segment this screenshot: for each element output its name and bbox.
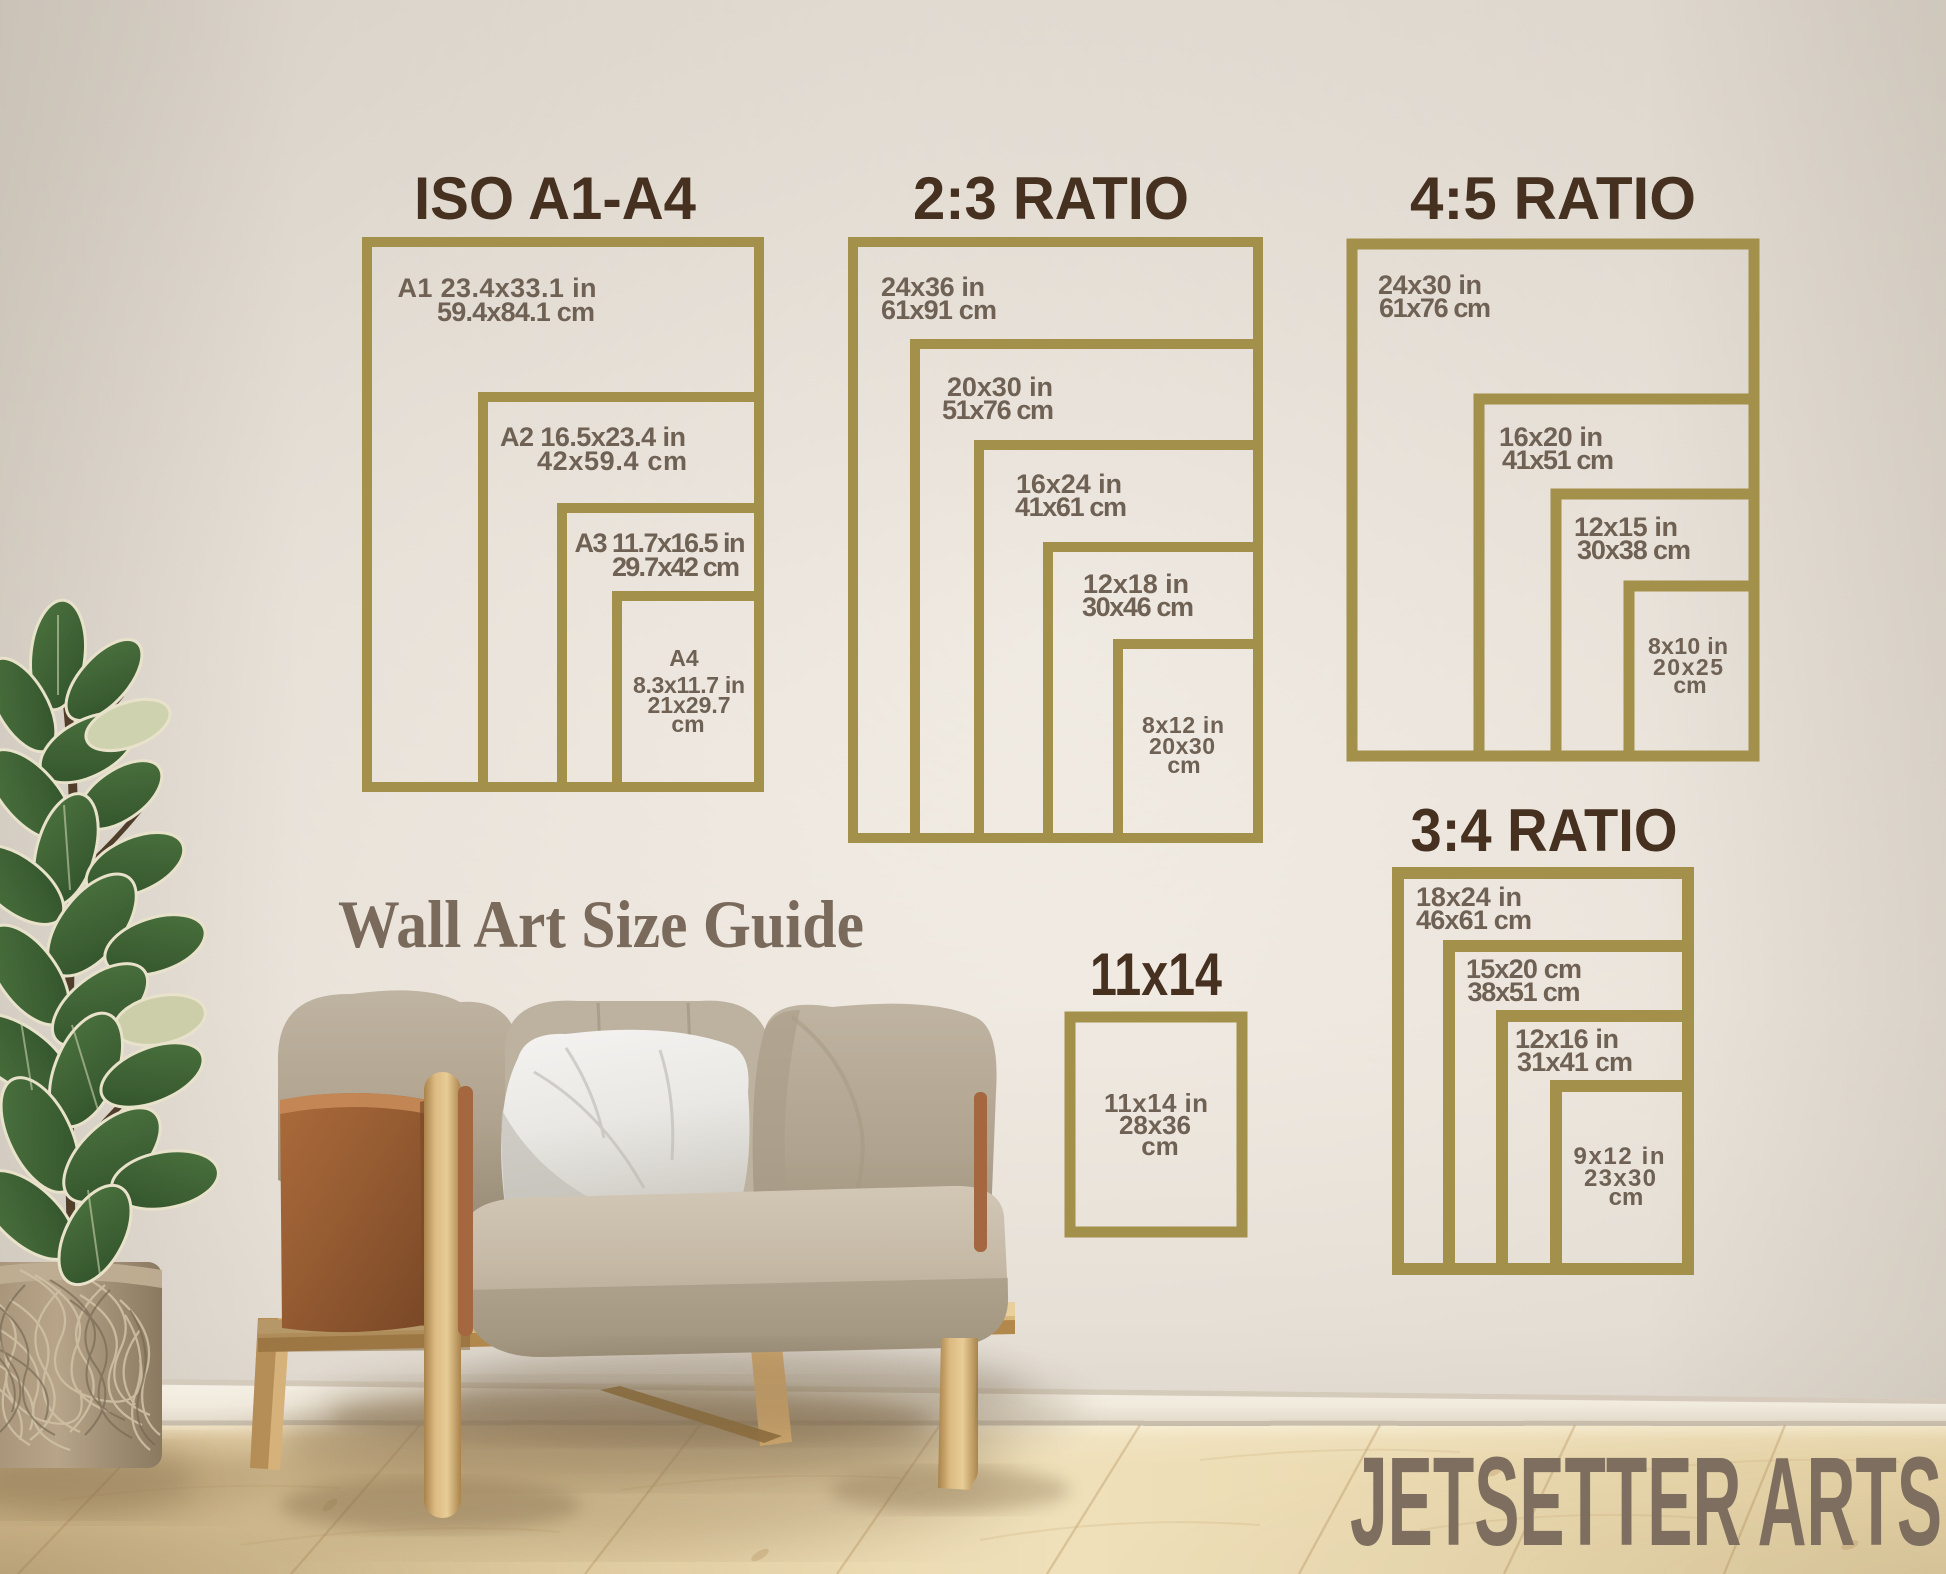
svg-text:46x61 cm: 46x61 cm [1416, 905, 1532, 935]
svg-text:A4: A4 [669, 645, 699, 671]
svg-text:cm: cm [671, 711, 704, 737]
svg-text:cm: cm [1609, 1184, 1644, 1211]
svg-text:38x51 cm: 38x51 cm [1468, 977, 1581, 1007]
svg-text:3:4 RATIO: 3:4 RATIO [1411, 797, 1678, 864]
svg-text:51x76 cm: 51x76 cm [942, 395, 1054, 425]
svg-text:61x91 cm: 61x91 cm [881, 295, 997, 325]
svg-text:4:5 RATIO: 4:5 RATIO [1410, 165, 1696, 232]
svg-text:2:3 RATIO: 2:3 RATIO [913, 165, 1189, 232]
svg-text:JETSETTER ARTS: JETSETTER ARTS [1350, 1431, 1942, 1572]
svg-text:ISO A1-A4: ISO A1-A4 [414, 165, 697, 232]
svg-text:42x59.4 cm: 42x59.4 cm [537, 446, 687, 476]
svg-text:30x46 cm: 30x46 cm [1082, 592, 1194, 622]
svg-text:59.4x84.1 cm: 59.4x84.1 cm [437, 297, 595, 327]
svg-text:11x14: 11x14 [1090, 941, 1222, 1008]
svg-text:29.7x42 cm: 29.7x42 cm [612, 552, 740, 582]
svg-text:Wall Art Size Guide: Wall Art Size Guide [338, 886, 864, 962]
svg-text:30x38 cm: 30x38 cm [1577, 535, 1691, 565]
svg-text:41x51 cm: 41x51 cm [1502, 445, 1614, 475]
svg-text:cm: cm [1673, 672, 1706, 698]
svg-text:61x76 cm: 61x76 cm [1379, 293, 1491, 323]
svg-text:cm: cm [1141, 1131, 1179, 1161]
svg-text:cm: cm [1167, 752, 1200, 778]
svg-text:31x41 cm: 31x41 cm [1517, 1047, 1633, 1077]
svg-text:41x61 cm: 41x61 cm [1015, 492, 1127, 522]
